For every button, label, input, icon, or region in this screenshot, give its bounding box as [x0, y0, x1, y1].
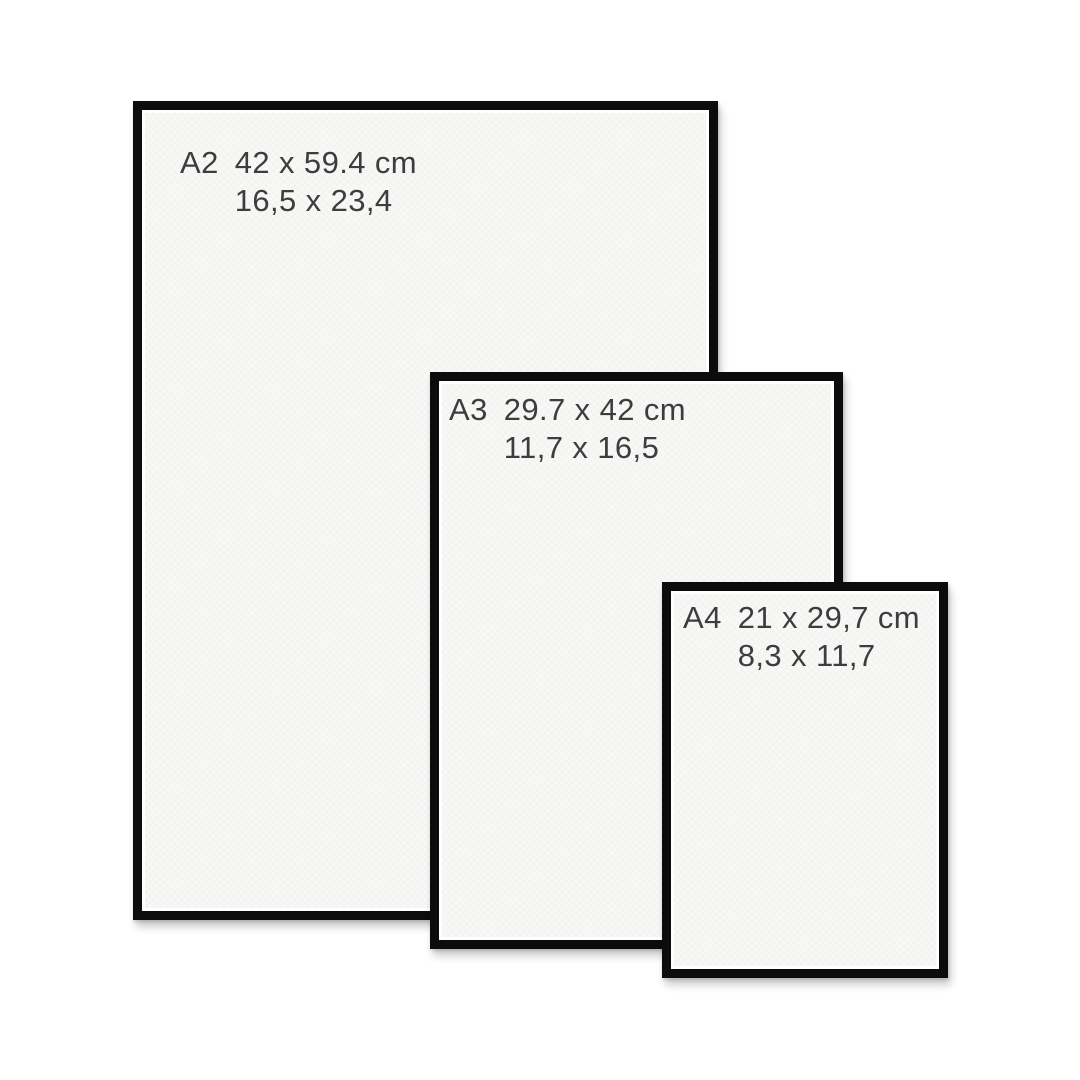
frame-a3-label: A3 29.7 x 42 cm 11,7 x 16,5: [439, 381, 834, 467]
frame-a4: A4 21 x 29,7 cm 8,3 x 11,7: [662, 582, 948, 978]
frame-a4-label: A4 21 x 29,7 cm 8,3 x 11,7: [671, 591, 939, 675]
frame-a3-size-code: A3: [449, 391, 488, 429]
frame-a3-dimensions-cm: 29.7 x 42 cm: [504, 391, 686, 429]
frame-a3-dimensions: 29.7 x 42 cm 11,7 x 16,5: [504, 391, 686, 467]
frame-a4-dimensions-cm: 21 x 29,7 cm: [738, 599, 920, 637]
frame-a4-dimensions: 21 x 29,7 cm 8,3 x 11,7: [738, 599, 920, 675]
frame-a2-dimensions: 42 x 59.4 cm 16,5 x 23,4: [235, 144, 417, 220]
frame-a2-dimensions-inches: 16,5 x 23,4: [235, 182, 393, 220]
size-comparison-diagram: A2 42 x 59.4 cm 16,5 x 23,4 A3 29.7 x 42…: [0, 0, 1080, 1080]
frame-a3-dimensions-inches: 11,7 x 16,5: [504, 429, 660, 467]
frame-a2-label: A2 42 x 59.4 cm 16,5 x 23,4: [142, 110, 709, 220]
frame-a4-dimensions-inches: 8,3 x 11,7: [738, 637, 876, 675]
frame-a2-size-code: A2: [180, 144, 219, 182]
frame-a4-size-code: A4: [683, 599, 722, 637]
frame-a2-dimensions-cm: 42 x 59.4 cm: [235, 144, 417, 182]
